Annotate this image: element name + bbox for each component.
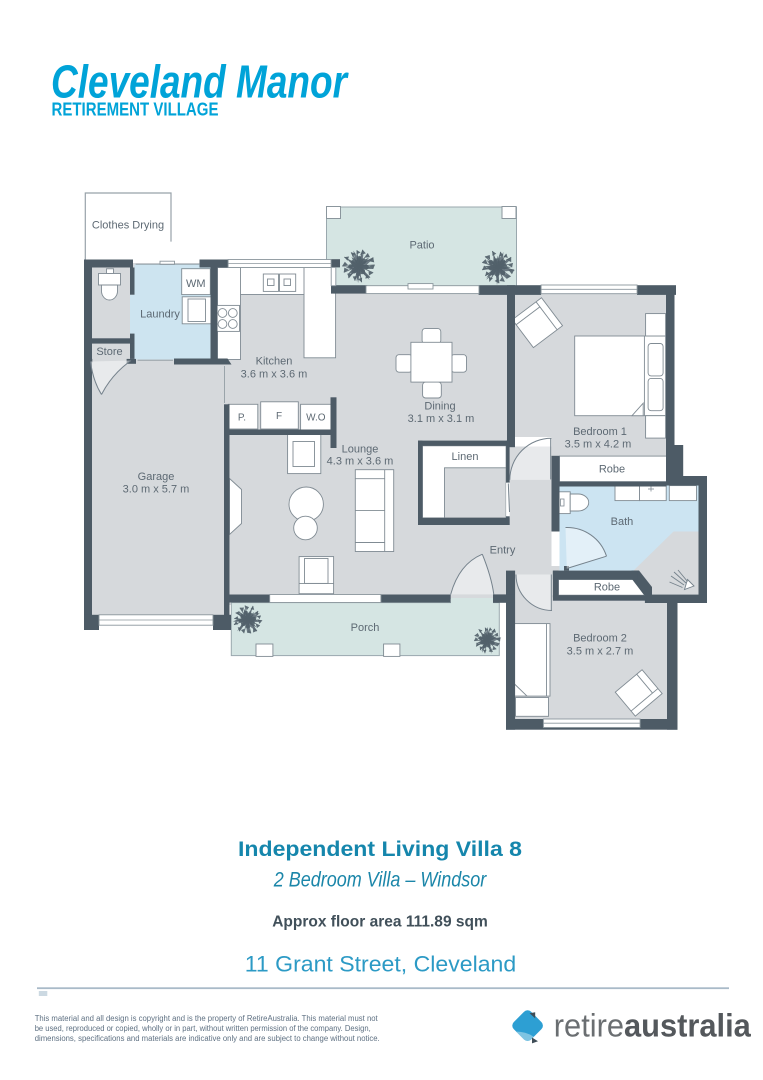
svg-text:retireaustralia: retireaustralia xyxy=(554,1007,751,1043)
svg-text:Garage: Garage xyxy=(138,471,175,483)
svg-text:F: F xyxy=(276,411,282,422)
svg-text:Bedroom 1: Bedroom 1 xyxy=(573,426,627,438)
svg-text:Linen: Linen xyxy=(452,451,479,463)
svg-text:2 Bedroom Villa – Windsor: 2 Bedroom Villa – Windsor xyxy=(273,869,487,892)
svg-text:Porch: Porch xyxy=(351,622,380,634)
svg-text:Approx floor area 111.89 sqm: Approx floor area 111.89 sqm xyxy=(272,914,488,931)
svg-text:Laundry: Laundry xyxy=(140,309,180,321)
svg-text:Dining: Dining xyxy=(424,401,455,413)
svg-text:Kitchen: Kitchen xyxy=(256,356,293,368)
svg-text:RETIREMENT VILLAGE: RETIREMENT VILLAGE xyxy=(52,99,219,120)
svg-text:3.1 m x 3.1 m: 3.1 m x 3.1 m xyxy=(408,413,475,425)
svg-text:Bedroom 2: Bedroom 2 xyxy=(573,633,627,645)
svg-text:be used, reproduced or copied,: be used, reproduced or copied, wholly or… xyxy=(35,1024,371,1033)
svg-text:Patio: Patio xyxy=(409,240,434,252)
svg-text:Robe: Robe xyxy=(599,464,625,476)
svg-text:Store: Store xyxy=(96,346,122,358)
svg-text:dimensions, specifications and: dimensions, specifications and materials… xyxy=(35,1034,380,1043)
svg-text:P.: P. xyxy=(238,413,246,424)
svg-text:Lounge: Lounge xyxy=(342,444,379,456)
svg-text:3.6 m x 3.6 m: 3.6 m x 3.6 m xyxy=(241,369,308,381)
svg-text:3.5 m x 4.2 m: 3.5 m x 4.2 m xyxy=(565,439,632,451)
svg-text:This material and all design i: This material and all design is copyrigh… xyxy=(35,1014,379,1023)
svg-text:W.O: W.O xyxy=(306,413,326,424)
svg-text:3.0 m x 5.7 m: 3.0 m x 5.7 m xyxy=(123,484,190,496)
svg-text:Bath: Bath xyxy=(611,516,634,528)
svg-text:11 Grant Street, Cleveland: 11 Grant Street, Cleveland xyxy=(245,952,516,977)
svg-text:Robe: Robe xyxy=(594,582,620,594)
svg-text:3.5 m x 2.7 m: 3.5 m x 2.7 m xyxy=(567,646,634,658)
svg-text:Entry: Entry xyxy=(490,545,516,557)
svg-text:Clothes Drying: Clothes Drying xyxy=(92,220,164,232)
svg-text:Independent Living Villa 8: Independent Living Villa 8 xyxy=(238,838,522,861)
svg-text:WM: WM xyxy=(186,278,206,290)
svg-text:4.3 m x 3.6 m: 4.3 m x 3.6 m xyxy=(327,456,394,468)
